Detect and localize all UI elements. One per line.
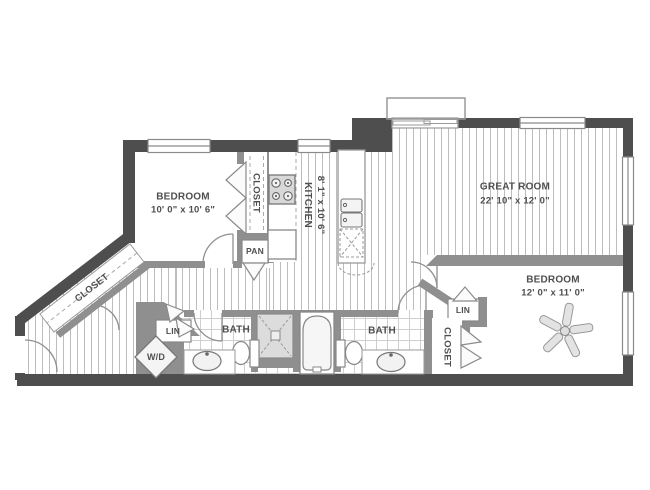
bifold-bedroom1-closet: [226, 162, 246, 198]
appliance-swing-dash: [338, 263, 374, 275]
vanity-sink-icon-left: [184, 350, 235, 374]
bath-right-door-arc: [398, 285, 426, 313]
bedroom1-label: BEDROOM: [156, 192, 210, 203]
bath-fixtures: [184, 312, 424, 374]
closet-bedroom2-label: CLOSET: [442, 327, 453, 367]
pantry-label: PAN: [246, 246, 264, 256]
closet-top-label: CLOSET: [251, 173, 262, 213]
great-room-label: GREAT ROOM: [480, 182, 550, 193]
island-double-sink-icon: [341, 199, 362, 227]
bath-right-label: BATH: [368, 326, 396, 337]
toilet-icon-right: [336, 340, 363, 367]
linen-left-label: LIN: [166, 326, 180, 336]
bath-left-door-arc: [194, 313, 222, 341]
entry-closet-door-arc: [95, 305, 119, 330]
vanity-sink-icon-right: [362, 350, 424, 374]
plan-drawing: [0, 0, 650, 490]
bedroom2-dims: 12' 0" x 11' 0": [521, 288, 585, 299]
stove-icon: [269, 175, 295, 204]
kitchen-name: KITCHEN: [301, 182, 314, 228]
bifold-linen-right: [453, 287, 477, 301]
bifold-bedroom2-closet: [461, 326, 481, 345]
kitchen-dims: 8' 1" x 10' 6": [314, 176, 327, 235]
floor-plan: BEDROOM 10' 0" x 10' 6" GREAT ROOM 22' 1…: [0, 0, 650, 490]
balcony-outline: [387, 98, 465, 119]
refrigerator-icon: [268, 230, 296, 259]
toilet-icon-left: [233, 340, 260, 367]
bathtub-icon: [300, 312, 334, 374]
kitchen-label: 8' 1" x 10' 6" KITCHEN: [301, 176, 327, 235]
shower-icon: [257, 314, 293, 358]
bedroom1-door-arc: [203, 234, 233, 264]
linen-right-label: LIN: [456, 305, 470, 315]
great-room-dims: 22' 10" x 12' 0": [480, 196, 550, 207]
washer-dryer-label: W/D: [147, 352, 165, 362]
bath-left-label: BATH: [222, 325, 250, 336]
ceiling-fan-icon: [538, 303, 593, 358]
entry-door-arc: [25, 340, 57, 372]
entry-door-gap: [14, 336, 26, 373]
bifold-pantry: [243, 263, 265, 280]
bedroom1-dims: 10' 0" x 10' 6": [151, 205, 215, 216]
bedroom2-label: BEDROOM: [526, 275, 580, 286]
kitchen-island: [338, 150, 374, 275]
